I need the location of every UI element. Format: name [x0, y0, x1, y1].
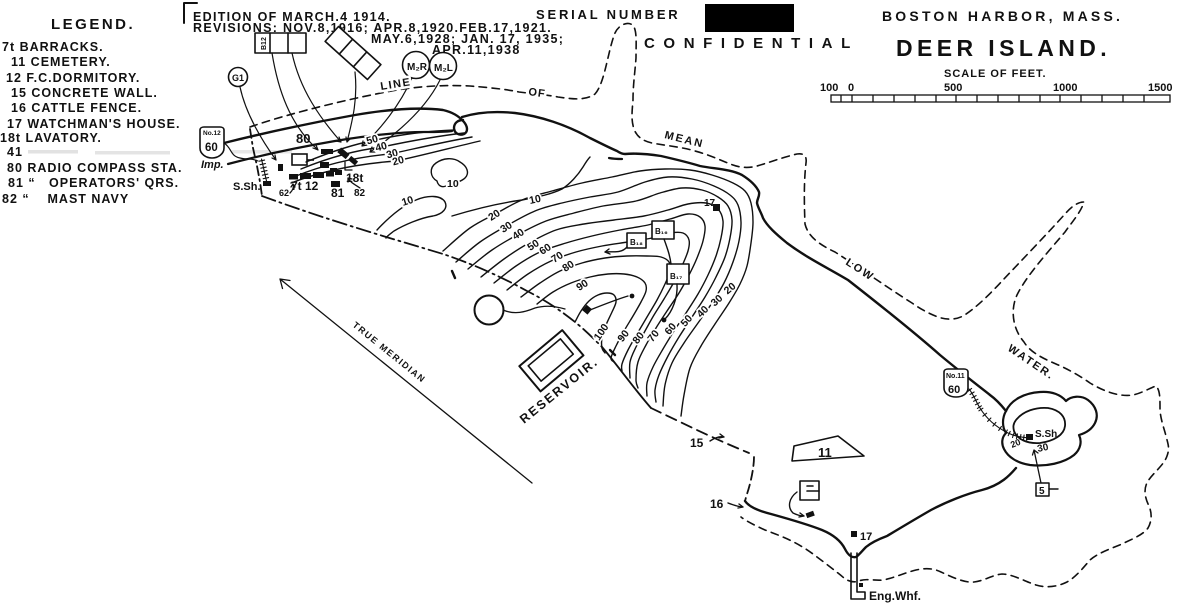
svg-text:16: 16 — [710, 497, 724, 511]
svg-text:Imp.: Imp. — [201, 159, 224, 171]
svg-text:17 WATCHMAN'S HOUSE.: 17 WATCHMAN'S HOUSE. — [7, 117, 180, 131]
svg-text:B₁₆: B₁₆ — [655, 227, 668, 236]
svg-text:CONFIDENTIAL: CONFIDENTIAL — [644, 35, 859, 52]
svg-text:81: 81 — [331, 186, 345, 200]
svg-text:Eng.Whf.: Eng.Whf. — [869, 589, 921, 603]
svg-text:41: 41 — [7, 145, 23, 159]
svg-text:No.12: No.12 — [203, 130, 221, 137]
svg-text:SCALE OF FEET.: SCALE OF FEET. — [944, 68, 1047, 80]
svg-text:B12: B12 — [261, 37, 268, 50]
svg-text:80: 80 — [296, 131, 310, 146]
svg-text:0: 0 — [848, 82, 854, 94]
svg-text:SERIAL NUMBER: SERIAL NUMBER — [536, 7, 681, 22]
svg-text:11 CEMETERY.: 11 CEMETERY. — [11, 55, 111, 69]
svg-text:60: 60 — [948, 384, 960, 396]
svg-text:M₂R: M₂R — [407, 62, 428, 73]
svg-text:1000: 1000 — [1053, 82, 1077, 94]
svg-text:17: 17 — [860, 531, 872, 543]
svg-text:15: 15 — [690, 436, 704, 450]
svg-text:12 F.C.DORMITORY.: 12 F.C.DORMITORY. — [6, 71, 140, 85]
svg-text:LEGEND.: LEGEND. — [51, 16, 135, 33]
svg-text:60: 60 — [205, 142, 218, 154]
svg-text:82: 82 — [354, 188, 366, 199]
svg-text:10: 10 — [447, 178, 459, 190]
svg-text:17: 17 — [704, 198, 716, 209]
svg-text:81 “ OPERATORS' QRS.: 81 “ OPERATORS' QRS. — [8, 176, 179, 190]
svg-text:15 CONCRETE WALL.: 15 CONCRETE WALL. — [11, 86, 158, 100]
svg-text:80 RADIO COMPASS STA.: 80 RADIO COMPASS STA. — [7, 161, 182, 175]
svg-text:500: 500 — [944, 82, 962, 94]
svg-text:OF: OF — [528, 86, 547, 100]
svg-text:18t: 18t — [346, 171, 363, 185]
svg-text:BOSTON HARBOR, MASS.: BOSTON HARBOR, MASS. — [882, 8, 1123, 24]
svg-text:DEER ISLAND.: DEER ISLAND. — [896, 35, 1111, 61]
svg-text:No.11: No.11 — [946, 373, 965, 380]
svg-text:B₁₇: B₁₇ — [670, 272, 682, 281]
svg-text:18t LAVATORY.: 18t LAVATORY. — [0, 131, 102, 145]
svg-text:7t 12: 7t 12 — [291, 179, 319, 193]
svg-text:G1: G1 — [232, 73, 244, 83]
svg-text:82 “ MAST NAVY: 82 “ MAST NAVY — [2, 192, 129, 206]
svg-text:5: 5 — [1039, 486, 1045, 497]
svg-text:1500: 1500 — [1148, 82, 1172, 94]
svg-text:B₁₈: B₁₈ — [630, 238, 643, 247]
svg-text:S.Sh.: S.Sh. — [233, 181, 261, 193]
svg-text:100: 100 — [820, 82, 838, 94]
svg-text:7t BARRACKS.: 7t BARRACKS. — [2, 40, 104, 54]
svg-text:11: 11 — [818, 445, 832, 460]
svg-text:62: 62 — [279, 188, 289, 198]
svg-text:S.Sh.: S.Sh. — [1035, 429, 1060, 440]
svg-text:M₂L: M₂L — [434, 63, 453, 74]
svg-text:16 CATTLE FENCE.: 16 CATTLE FENCE. — [11, 101, 142, 115]
